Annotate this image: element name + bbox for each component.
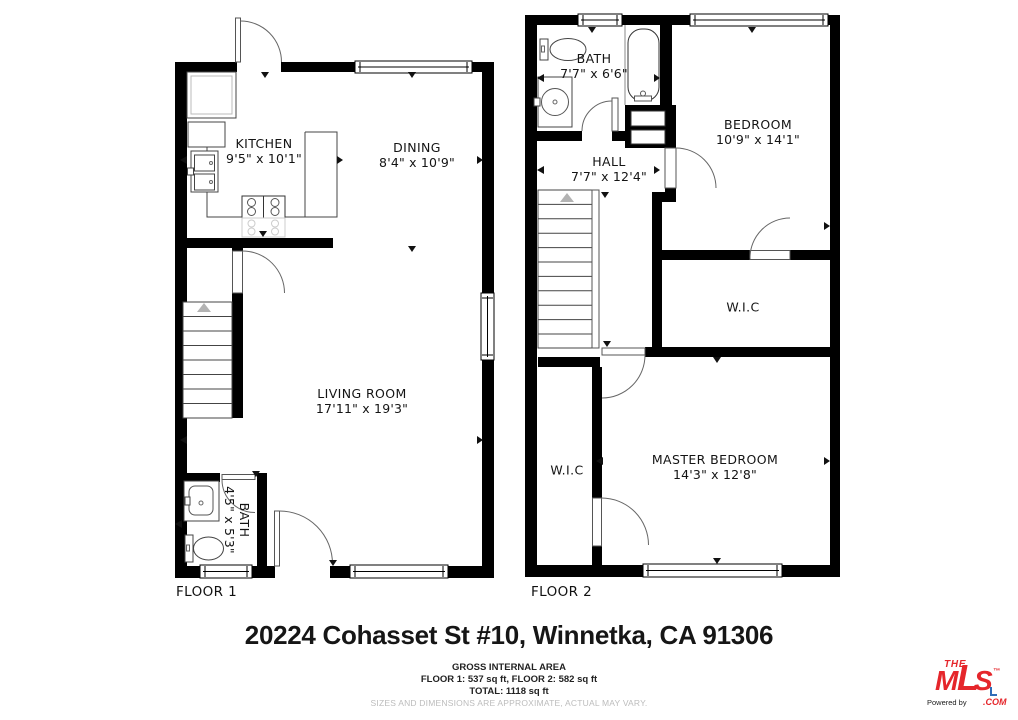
room-name: LIVING ROOM xyxy=(316,386,408,401)
room-name: BEDROOM xyxy=(716,117,800,132)
room-name: BATH xyxy=(560,51,628,66)
window xyxy=(355,61,472,73)
window xyxy=(200,565,252,578)
bath1-vanity-sink xyxy=(184,481,219,521)
area-heading: GROSS INTERNAL AREA xyxy=(0,662,1018,673)
room-name: BATH xyxy=(237,486,252,554)
area-disclaimer: SIZES AND DIMENSIONS ARE APPROXIMATE, AC… xyxy=(0,698,1018,708)
floor1-plan xyxy=(170,0,500,605)
room-label-dining: DINING 8'4" x 10'9" xyxy=(379,140,455,170)
entry-door xyxy=(236,18,282,62)
bath2-vanity-sink xyxy=(534,77,572,127)
room-label-wic-lower: W.I.C xyxy=(550,463,583,478)
mls-logo-com: .COM xyxy=(983,697,1007,707)
room-dims: 9'5" x 10'1" xyxy=(226,151,302,166)
stove xyxy=(242,196,285,218)
mls-blue-mark-icon xyxy=(990,687,997,696)
wic-upper-door xyxy=(750,218,790,260)
address-title: 20224 Cohasset St #10, Winnetka, CA 9130… xyxy=(0,620,1018,651)
room-name: DINING xyxy=(379,140,455,155)
mls-powered-by: Powered by xyxy=(927,698,967,707)
room-label-master-bedroom: MASTER BEDROOM 14'3" x 12'8" xyxy=(652,452,778,482)
floor2-staircase xyxy=(538,190,599,348)
area-floors: FLOOR 1: 537 sq ft, FLOOR 2: 582 sq ft xyxy=(0,674,1018,685)
room-label-bath1: BATH 4'5" x 5'3" xyxy=(222,486,252,554)
room-name: HALL xyxy=(571,154,647,169)
floor1-label: FLOOR 1 xyxy=(176,584,237,600)
room-dims: 8'4" x 10'9" xyxy=(379,155,455,170)
bath1-toilet xyxy=(185,535,224,562)
floor1-staircase xyxy=(183,302,232,418)
floor1-doors xyxy=(222,18,333,566)
kitchen-cabinet xyxy=(188,122,225,147)
kitchen-door xyxy=(233,251,285,293)
room-dims: 7'7" x 12'4" xyxy=(571,169,647,184)
room-dims: 4'5" x 5'3" xyxy=(222,486,237,554)
floor2-label: FLOOR 2 xyxy=(531,584,592,600)
mls-logo-trademark: ™ xyxy=(993,668,1000,675)
room-dims: 14'3" x 12'8" xyxy=(652,467,778,482)
room-label-living-room: LIVING ROOM 17'11" x 19'3" xyxy=(316,386,408,416)
wic-lower-door xyxy=(593,498,649,546)
room-dims: 7'7" x 6'6" xyxy=(560,66,628,81)
room-name: KITCHEN xyxy=(226,136,302,151)
mls-logo: THE M L S ™ .COM Powered by xyxy=(925,652,1015,712)
room-dims: 10'9" x 14'1" xyxy=(716,132,800,147)
floorplan-canvas: KITCHEN 9'5" x 10'1" DINING 8'4" x 10'9"… xyxy=(0,0,1018,720)
area-total: TOTAL: 1118 sq ft xyxy=(0,686,1018,697)
bath2-door xyxy=(582,98,618,131)
window xyxy=(578,14,622,26)
kitchen-sink xyxy=(188,151,219,192)
bathtub xyxy=(625,25,659,105)
room-label-bath2: BATH 7'7" x 6'6" xyxy=(560,51,628,81)
master-bedroom-door xyxy=(602,348,645,398)
room-label-bedroom: BEDROOM 10'9" x 14'1" xyxy=(716,117,800,147)
room-name: W.I.C xyxy=(550,463,583,478)
room-name: MASTER BEDROOM xyxy=(652,452,778,467)
bedroom-door xyxy=(665,148,716,188)
room-label-hall: HALL 7'7" x 12'4" xyxy=(571,154,647,184)
living-room-door xyxy=(275,511,333,566)
window xyxy=(643,564,782,577)
floor2-plan xyxy=(515,0,845,605)
mls-logo-letter-m: M xyxy=(935,665,958,697)
window xyxy=(690,14,828,26)
room-name: W.I.C xyxy=(726,300,759,315)
refrigerator xyxy=(187,72,236,118)
room-label-kitchen: KITCHEN 9'5" x 10'1" xyxy=(226,136,302,166)
room-label-wic-upper: W.I.C xyxy=(726,300,759,315)
window xyxy=(481,293,494,360)
room-dims: 17'11" x 19'3" xyxy=(316,401,408,416)
window xyxy=(350,565,448,578)
